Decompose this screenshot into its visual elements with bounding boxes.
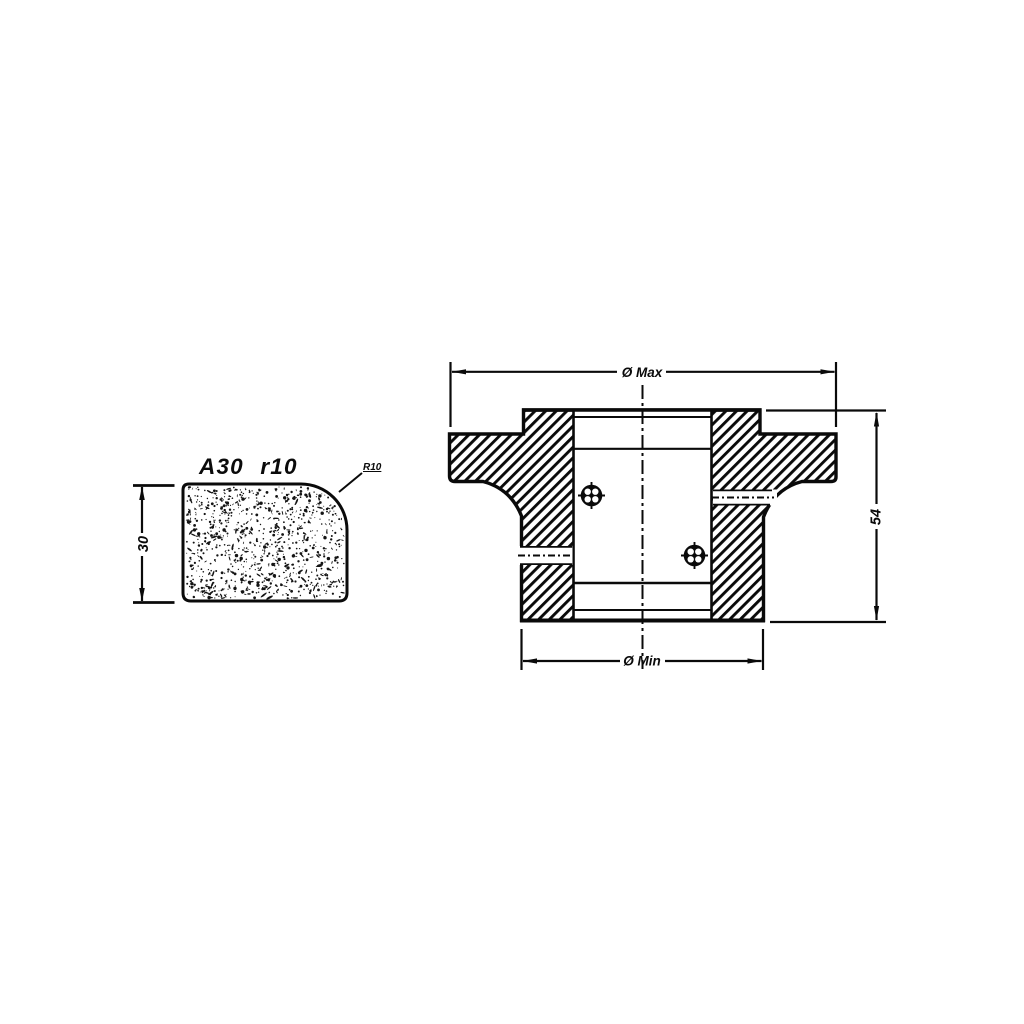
svg-text:54: 54	[868, 509, 884, 525]
svg-text:R10: R10	[363, 462, 382, 473]
svg-text:Ø Max: Ø Max	[622, 365, 663, 380]
svg-text:30: 30	[136, 536, 152, 552]
svg-text:Ø Min: Ø Min	[623, 654, 661, 669]
svg-text:A30 r10: A30 r10	[198, 454, 298, 479]
